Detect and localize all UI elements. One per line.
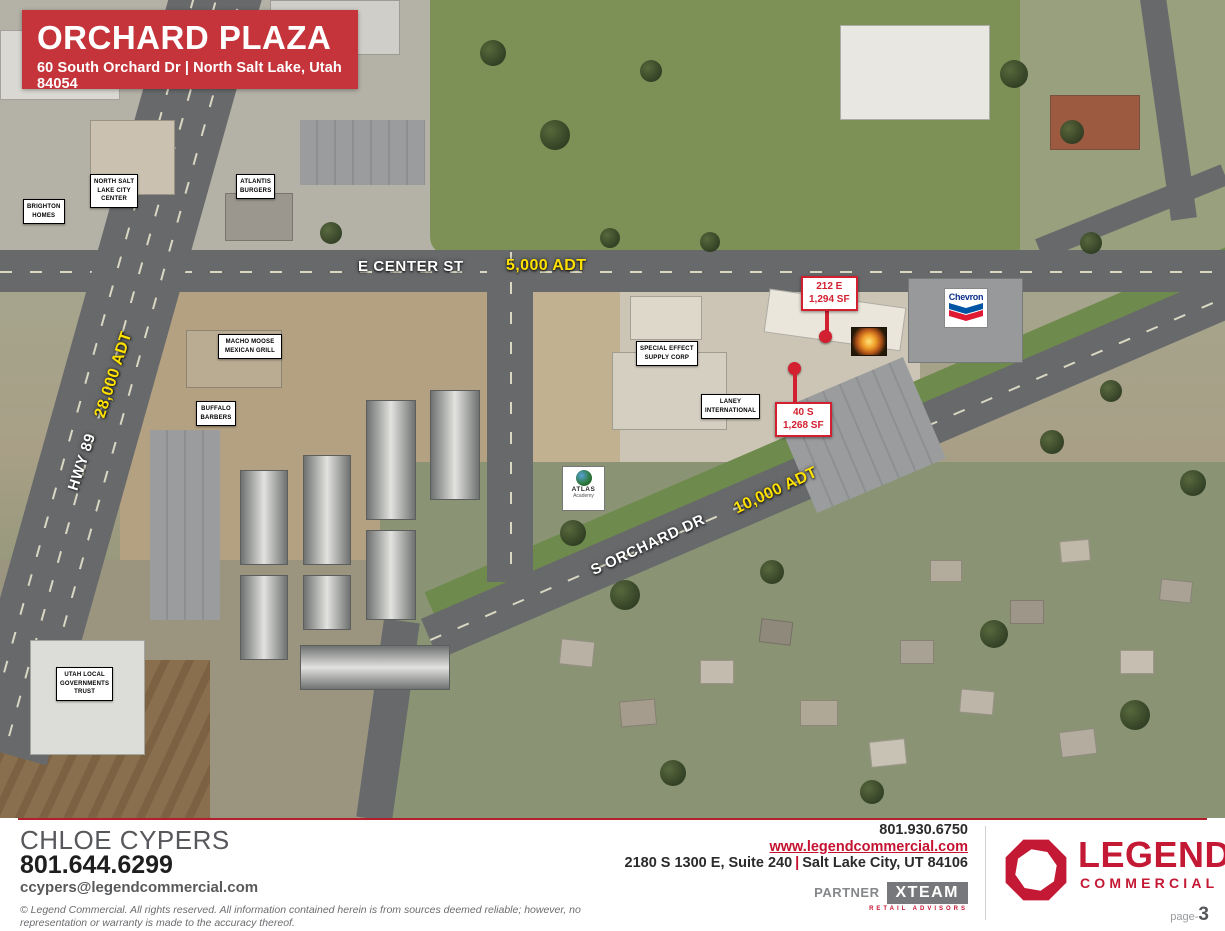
map-tree xyxy=(560,520,586,546)
map-building xyxy=(1010,600,1044,624)
xteam-tagline: RETAIL ADVISORS xyxy=(625,906,969,912)
atlas-sign-subtitle: Academy xyxy=(563,493,604,499)
legal-disclaimer: © Legend Commercial. All rights reserved… xyxy=(20,904,635,930)
parking-lot xyxy=(300,120,425,185)
legend-pinwheel-icon xyxy=(1002,836,1070,904)
map-tree xyxy=(1060,120,1084,144)
business-label-atlantis-burgers: ATLANTIS BURGERS xyxy=(236,174,275,199)
page-value: 3 xyxy=(1198,904,1209,925)
map-building xyxy=(840,25,990,120)
agent-phone: 801.644.6299 xyxy=(20,851,173,880)
business-label-buffalo-barbers: BUFFALO BARBERS xyxy=(196,401,236,426)
callout-leader-line xyxy=(793,374,797,402)
property-title: ORCHARD PLAZA xyxy=(37,21,358,56)
map-tree xyxy=(480,40,506,66)
company-website-link[interactable]: www.legendcommercial.com xyxy=(625,839,969,856)
business-label-laney-international: LANEY INTERNATIONAL xyxy=(701,394,760,419)
map-building xyxy=(225,193,293,241)
company-address-city: Salt Lake City, UT 84106 xyxy=(802,855,968,871)
globe-balloon-icon xyxy=(576,470,592,486)
map-building xyxy=(240,470,288,565)
map-building xyxy=(1059,539,1091,564)
map-building xyxy=(366,400,416,520)
property-header: ORCHARD PLAZA 60 South Orchard Dr | Nort… xyxy=(22,10,358,89)
map-tree xyxy=(320,222,342,244)
map-building xyxy=(800,700,838,726)
business-label-brighton-homes: BRIGHTON HOMES xyxy=(23,199,65,224)
business-label-special-effect-supply-corp: SPECIAL EFFECT SUPPLY CORP xyxy=(636,341,698,366)
page-number: page-3 xyxy=(1170,904,1209,926)
location-pin xyxy=(819,330,832,343)
street-label-e-center-st: E CENTER ST xyxy=(358,258,464,275)
partner-row: PARTNER XTEAM xyxy=(625,882,969,904)
map-tree xyxy=(540,120,570,150)
callout-size: 1,268 SF xyxy=(783,420,824,433)
map-building xyxy=(900,640,934,664)
commercial-wordmark: COMMERCIAL xyxy=(1080,875,1218,891)
map-tree xyxy=(1040,430,1064,454)
map-building xyxy=(1159,578,1193,603)
business-label-north-salt-lake-city-center: NORTH SALT LAKE CITY CENTER xyxy=(90,174,138,208)
map-tree xyxy=(980,620,1008,648)
road-s-orchard-vertical xyxy=(487,252,533,582)
map-tree xyxy=(610,580,640,610)
callout-address: 40 S xyxy=(783,407,824,420)
chevron-logo-text: Chevron xyxy=(945,292,987,302)
chevron-sign: Chevron xyxy=(944,288,988,328)
map-building xyxy=(930,560,962,582)
map-building xyxy=(630,296,702,340)
map-tree xyxy=(1120,700,1150,730)
map-building xyxy=(303,575,351,630)
footer-divider-line xyxy=(18,818,1207,820)
company-address-street: 2180 S 1300 E, Suite 240 xyxy=(625,855,793,871)
map-building xyxy=(700,660,734,684)
business-label-utah-local-governments-trust: UTAH LOCAL GOVERNMENTS TRUST xyxy=(56,667,113,701)
map-tree xyxy=(860,780,884,804)
map-building xyxy=(869,738,908,768)
atlas-academy-sign: ATLAS Academy xyxy=(562,466,605,511)
map-tree xyxy=(1100,380,1122,402)
company-phone: 801.930.6750 xyxy=(625,822,969,839)
callout-address: 212 E xyxy=(809,281,850,294)
map-building xyxy=(303,455,351,565)
map-tree xyxy=(660,760,686,786)
aerial-map: E CENTER ST HWY 89 S ORCHARD DR 5,000 AD… xyxy=(0,0,1225,818)
map-tree xyxy=(1080,232,1102,254)
parking-lot xyxy=(150,430,220,620)
atlas-sign-title: ATLAS xyxy=(563,486,604,493)
traffic-count-e-center: 5,000 ADT xyxy=(506,257,586,275)
legend-wordmark: LEGEND xyxy=(1078,834,1225,876)
map-building xyxy=(300,645,450,690)
xteam-logo: XTEAM xyxy=(887,882,969,904)
callout-size: 1,294 SF xyxy=(809,294,850,307)
map-building xyxy=(559,638,596,667)
map-building xyxy=(1120,650,1154,674)
property-address: 60 South Orchard Dr | North Salt Lake, U… xyxy=(37,60,358,92)
map-building xyxy=(430,390,480,500)
partner-label: PARTNER xyxy=(814,885,879,900)
map-tree xyxy=(1180,470,1206,496)
map-building xyxy=(240,575,288,660)
map-tree xyxy=(640,60,662,82)
map-tree xyxy=(700,232,720,252)
map-building xyxy=(619,698,657,727)
company-address: 2180 S 1300 E, Suite 240|Salt Lake City,… xyxy=(625,855,969,872)
availability-callout-40s: 40 S 1,268 SF xyxy=(775,402,832,437)
availability-callout-212e: 212 E 1,294 SF xyxy=(801,276,858,311)
map-building xyxy=(959,689,995,716)
address-separator: | xyxy=(792,855,802,871)
vertical-divider xyxy=(985,826,986,920)
map-tree xyxy=(760,560,784,584)
page-label: page- xyxy=(1170,911,1198,923)
map-building xyxy=(366,530,416,620)
map-tree xyxy=(600,228,620,248)
map-building xyxy=(1059,728,1098,758)
agent-email[interactable]: ccypers@legendcommercial.com xyxy=(20,879,258,896)
company-contact-block: 801.930.6750 www.legendcommercial.com 21… xyxy=(625,822,969,912)
map-tree xyxy=(1000,60,1028,88)
flyer-page: E CENTER ST HWY 89 S ORCHARD DR 5,000 AD… xyxy=(0,0,1225,931)
map-building xyxy=(759,618,794,646)
business-label-macho-moose-mexican-grill: MACHO MOOSE MEXICAN GRILL xyxy=(218,334,282,359)
billboard-graphic xyxy=(851,327,887,356)
footer: CHLOE CYPERS 801.644.6299 ccypers@legend… xyxy=(0,818,1225,931)
